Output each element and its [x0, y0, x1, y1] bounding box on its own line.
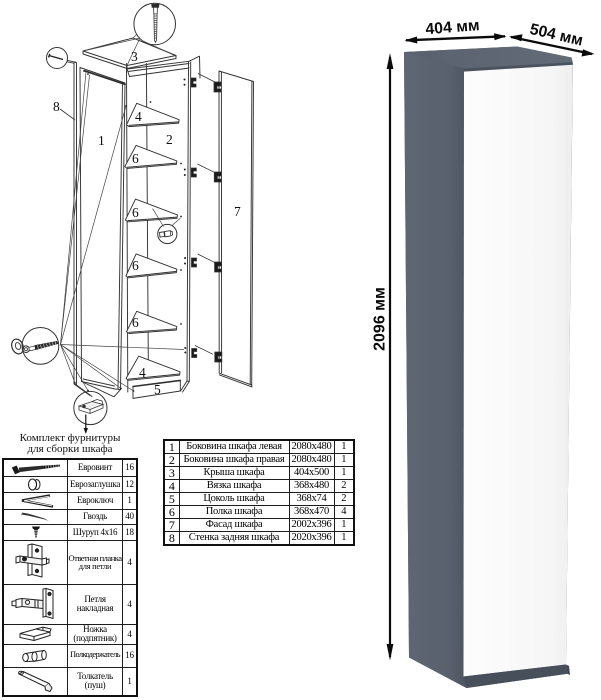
- svg-text:4: 4: [139, 365, 146, 380]
- svg-text:404 мм: 404 мм: [425, 17, 480, 38]
- svg-text:6: 6: [132, 315, 139, 330]
- svg-text:7: 7: [234, 204, 241, 219]
- svg-text:8: 8: [53, 99, 60, 114]
- svg-text:6: 6: [132, 205, 139, 220]
- svg-text:6: 6: [132, 151, 139, 166]
- svg-text:2096 мм: 2096 мм: [372, 287, 389, 351]
- svg-text:5: 5: [154, 382, 161, 397]
- svg-text:4: 4: [135, 109, 142, 124]
- svg-text:3: 3: [131, 49, 138, 64]
- svg-text:1: 1: [98, 133, 105, 148]
- svg-text:2: 2: [166, 132, 173, 147]
- svg-text:6: 6: [132, 258, 139, 273]
